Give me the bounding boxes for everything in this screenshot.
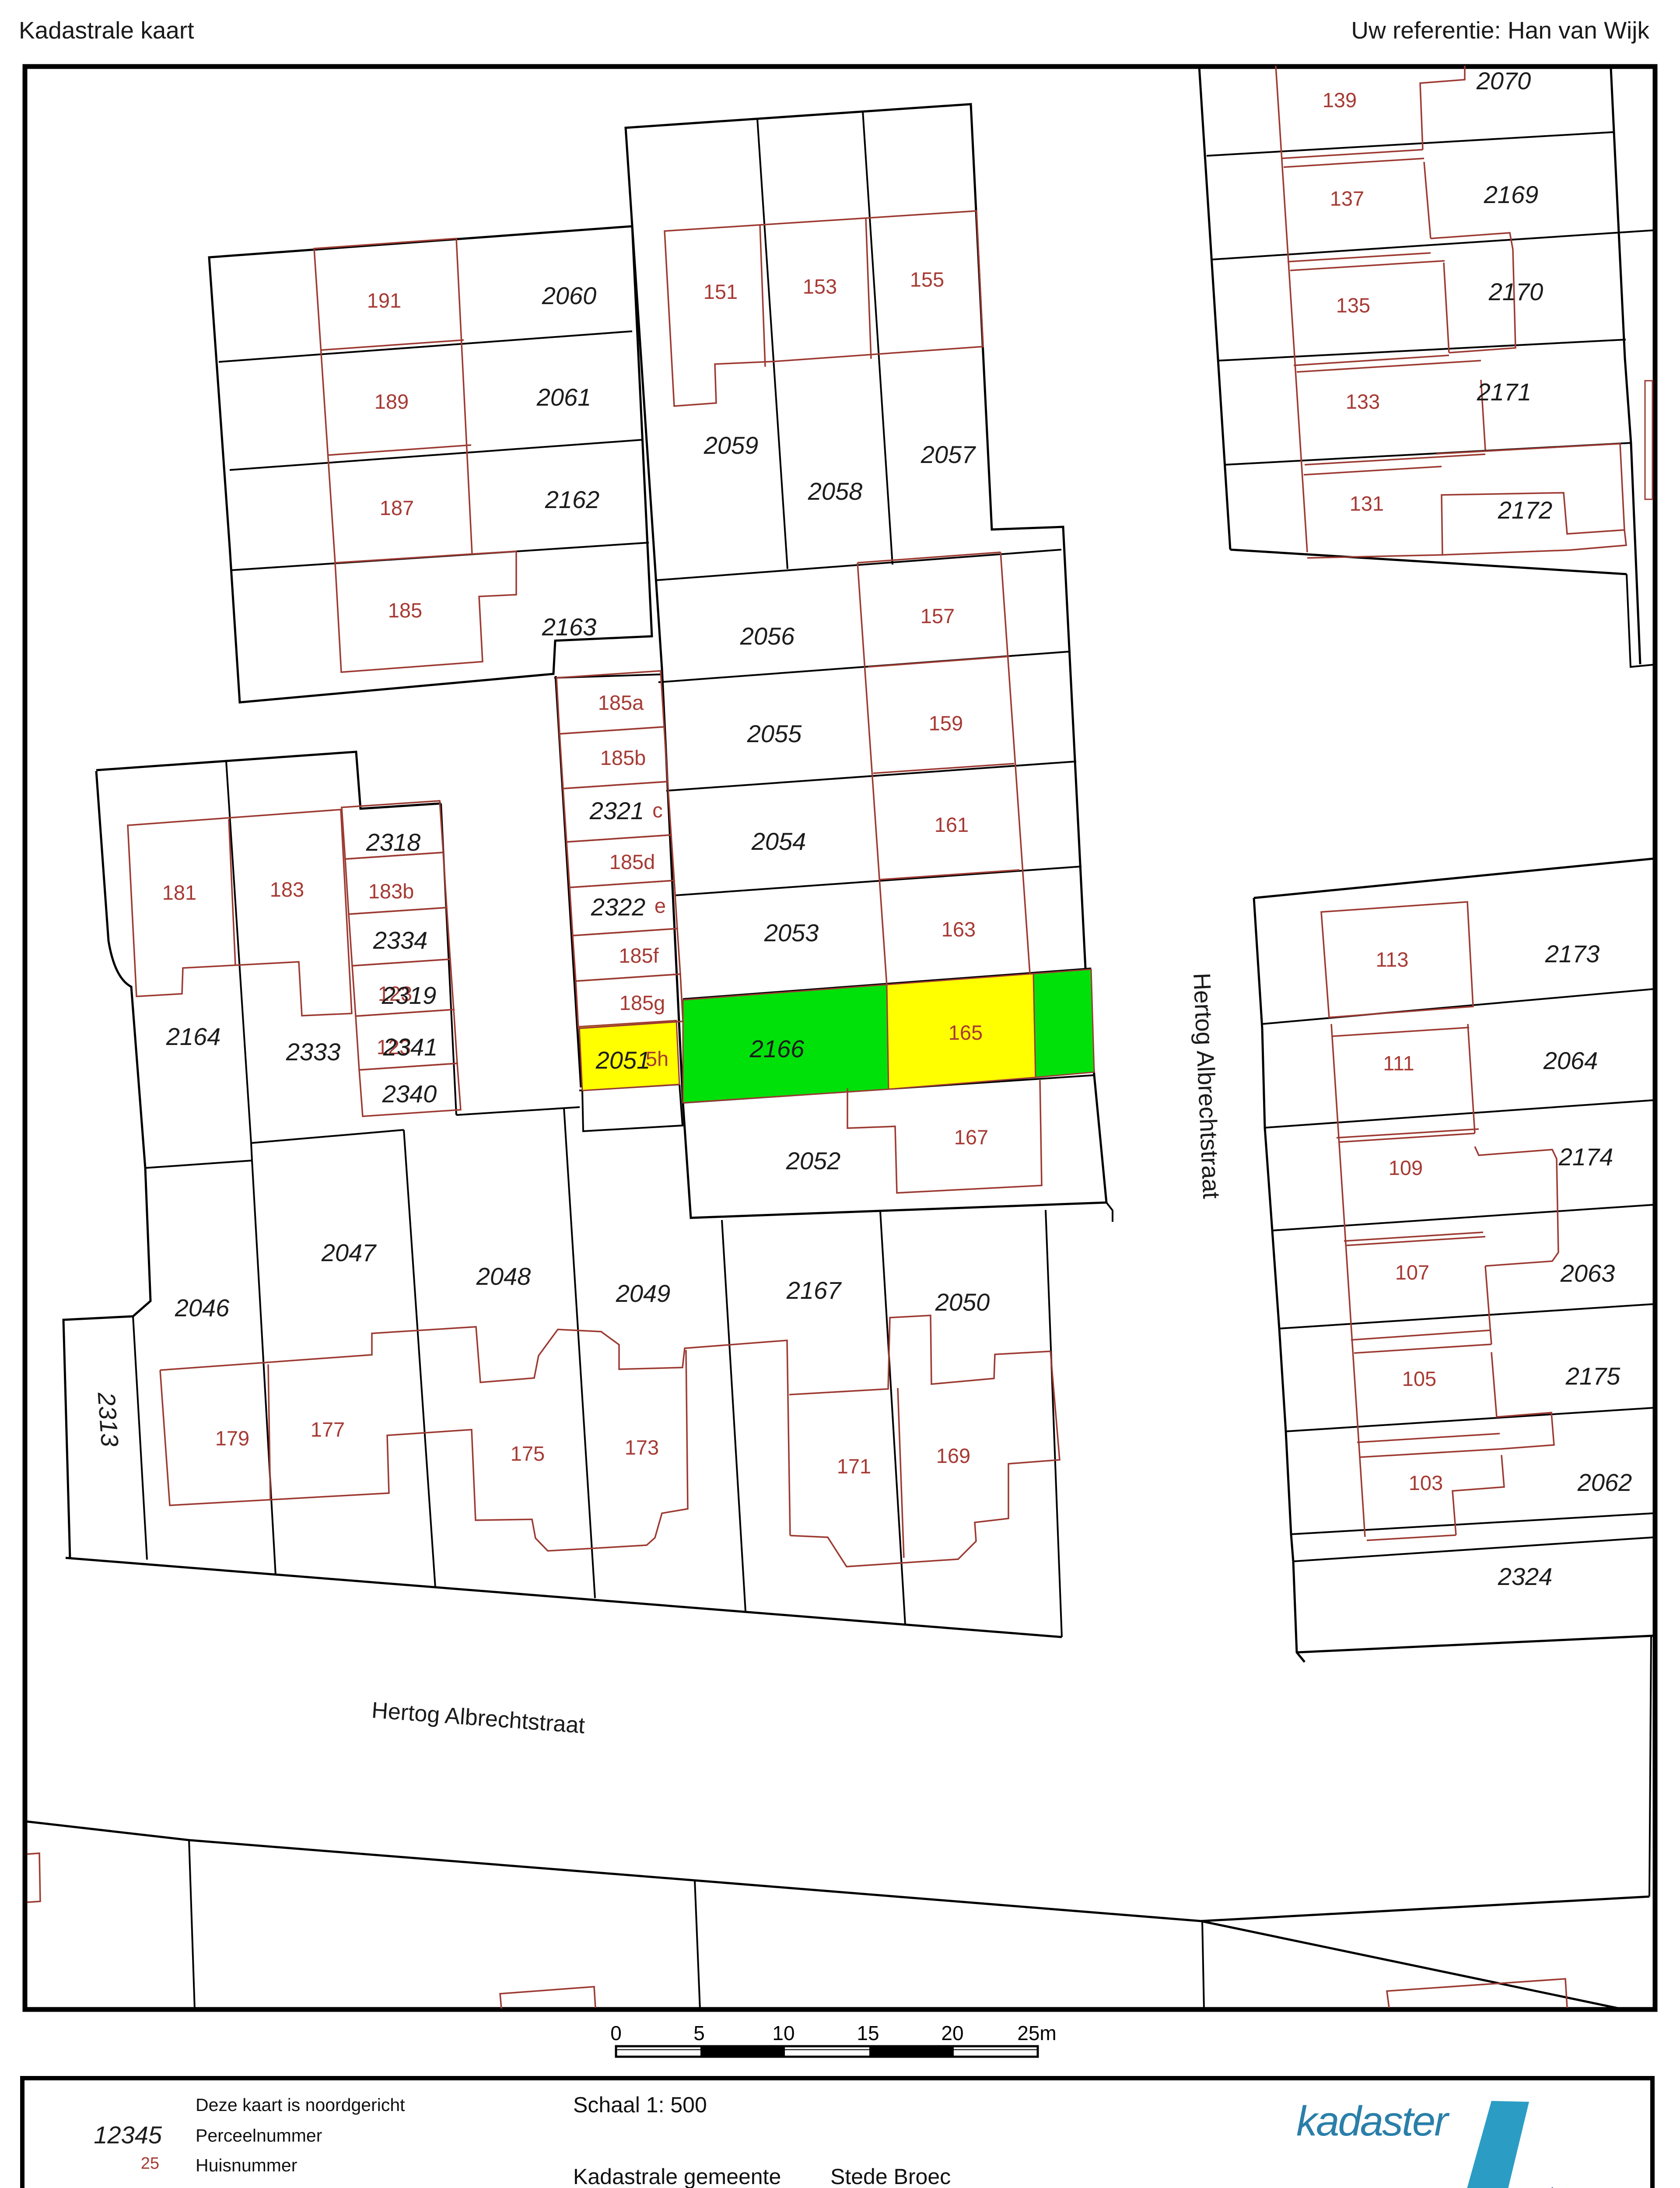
- svg-text:183b: 183b: [368, 880, 414, 903]
- svg-text:181: 181: [162, 881, 196, 904]
- svg-text:2051: 2051: [595, 1046, 651, 1074]
- svg-text:Huisnummer: Huisnummer: [196, 2155, 297, 2175]
- svg-text:2061: 2061: [536, 383, 591, 411]
- svg-text:185g: 185g: [619, 991, 665, 1014]
- svg-text:Vastgestelde kadastrale grens: Vastgestelde kadastrale grens: [196, 2185, 436, 2188]
- svg-text:10: 10: [772, 2022, 794, 2044]
- svg-text:159: 159: [929, 712, 963, 735]
- svg-text:2056: 2056: [740, 622, 795, 650]
- svg-text:2052: 2052: [786, 1147, 841, 1175]
- svg-text:163: 163: [941, 918, 976, 941]
- svg-text:173: 173: [625, 1436, 659, 1459]
- svg-text:2319: 2319: [381, 982, 437, 1009]
- svg-text:2318: 2318: [366, 828, 421, 856]
- svg-text:2049: 2049: [616, 1280, 671, 1307]
- svg-text:Kadastrale gemeente: Kadastrale gemeente: [573, 2164, 781, 2188]
- svg-text:2324: 2324: [1498, 1563, 1553, 1590]
- svg-text:191: 191: [367, 289, 401, 312]
- svg-text:2060: 2060: [542, 282, 597, 309]
- svg-text:185d: 185d: [609, 850, 655, 873]
- svg-text:2047: 2047: [321, 1239, 377, 1266]
- svg-text:Kadastrale kaart: Kadastrale kaart: [19, 17, 194, 44]
- svg-text:25m: 25m: [1017, 2022, 1056, 2044]
- svg-text:5h: 5h: [646, 1047, 668, 1070]
- svg-text:Uw referentie: Han van Wijk: Uw referentie: Han van Wijk: [1351, 17, 1649, 44]
- svg-text:111: 111: [1383, 1052, 1414, 1075]
- svg-text:2173: 2173: [1545, 940, 1600, 968]
- svg-text:135: 135: [1336, 294, 1370, 317]
- svg-text:kadaster: kadaster: [1296, 2098, 1450, 2145]
- svg-text:151: 151: [703, 280, 738, 303]
- svg-text:157: 157: [920, 604, 955, 628]
- svg-text:2166: 2166: [749, 1035, 805, 1062]
- svg-text:Schaal 1: 500: Schaal 1: 500: [573, 2093, 707, 2117]
- svg-text:133: 133: [1346, 390, 1380, 413]
- svg-text:113: 113: [1376, 948, 1409, 971]
- svg-text:167: 167: [954, 1126, 988, 1149]
- svg-text:171: 171: [837, 1455, 871, 1478]
- svg-text:153: 153: [803, 275, 837, 298]
- svg-text:103: 103: [1409, 1471, 1443, 1494]
- svg-text:e: e: [654, 894, 666, 917]
- svg-text:107: 107: [1395, 1261, 1429, 1284]
- svg-text:161: 161: [934, 813, 969, 836]
- svg-text:2055: 2055: [747, 720, 802, 747]
- svg-text:20: 20: [941, 2022, 963, 2044]
- svg-text:2058: 2058: [808, 477, 863, 505]
- svg-text:2046: 2046: [175, 1294, 230, 1322]
- svg-text:105: 105: [1402, 1367, 1436, 1390]
- svg-text:165: 165: [948, 1021, 983, 1044]
- svg-text:2174: 2174: [1558, 1143, 1613, 1171]
- svg-text:185f: 185f: [619, 944, 659, 967]
- svg-text:2070: 2070: [1476, 67, 1531, 95]
- svg-text:2062: 2062: [1577, 1469, 1632, 1496]
- svg-text:2313: 2313: [93, 1391, 124, 1448]
- svg-text:177: 177: [311, 1418, 345, 1441]
- svg-text:139: 139: [1323, 88, 1357, 112]
- svg-text:Deze kaart is noordgericht: Deze kaart is noordgericht: [196, 2095, 405, 2115]
- svg-text:2048: 2048: [476, 1262, 531, 1290]
- svg-text:2172: 2172: [1498, 496, 1553, 524]
- svg-text:15: 15: [857, 2022, 879, 2044]
- svg-text:2162: 2162: [545, 486, 600, 513]
- svg-text:179: 179: [215, 1427, 249, 1450]
- svg-text:185a: 185a: [598, 691, 644, 714]
- svg-text:0: 0: [610, 2022, 622, 2044]
- svg-text:175: 175: [511, 1442, 545, 1465]
- svg-text:109: 109: [1389, 1156, 1423, 1179]
- svg-text:2340: 2340: [382, 1080, 437, 1108]
- svg-text:131: 131: [1350, 492, 1384, 515]
- svg-text:2163: 2163: [542, 613, 597, 641]
- svg-text:189: 189: [374, 390, 409, 413]
- svg-text:2059: 2059: [703, 431, 759, 459]
- svg-text:185b: 185b: [600, 746, 646, 769]
- svg-text:2171: 2171: [1477, 378, 1532, 406]
- svg-text:2057: 2057: [920, 441, 976, 468]
- svg-text:183: 183: [270, 878, 304, 901]
- svg-text:2064: 2064: [1543, 1047, 1598, 1074]
- svg-text:Perceelnummer: Perceelnummer: [196, 2125, 322, 2146]
- svg-text:2054: 2054: [751, 828, 806, 855]
- svg-text:2170: 2170: [1488, 278, 1543, 305]
- svg-text:155: 155: [910, 268, 944, 291]
- svg-text:c: c: [652, 799, 663, 822]
- svg-text:2322: 2322: [591, 893, 646, 921]
- svg-text:169: 169: [936, 1444, 970, 1467]
- svg-text:2175: 2175: [1565, 1362, 1620, 1390]
- svg-text:2321: 2321: [589, 797, 644, 824]
- svg-text:2333: 2333: [286, 1038, 341, 1066]
- svg-text:2050: 2050: [935, 1288, 990, 1316]
- svg-text:2063: 2063: [1560, 1259, 1615, 1287]
- svg-text:Stede Broec: Stede Broec: [830, 2164, 951, 2188]
- svg-text:2334: 2334: [373, 926, 428, 954]
- svg-text:185: 185: [388, 599, 422, 622]
- svg-text:137: 137: [1330, 187, 1364, 210]
- svg-text:2169: 2169: [1484, 181, 1539, 208]
- svg-text:187: 187: [380, 496, 414, 519]
- svg-text:2167: 2167: [786, 1276, 842, 1304]
- svg-text:12345: 12345: [94, 2121, 162, 2149]
- svg-text:5: 5: [693, 2022, 705, 2044]
- svg-text:2164: 2164: [166, 1023, 221, 1050]
- svg-text:25: 25: [141, 2154, 159, 2173]
- svg-text:2053: 2053: [764, 919, 819, 947]
- svg-text:2341: 2341: [383, 1033, 438, 1061]
